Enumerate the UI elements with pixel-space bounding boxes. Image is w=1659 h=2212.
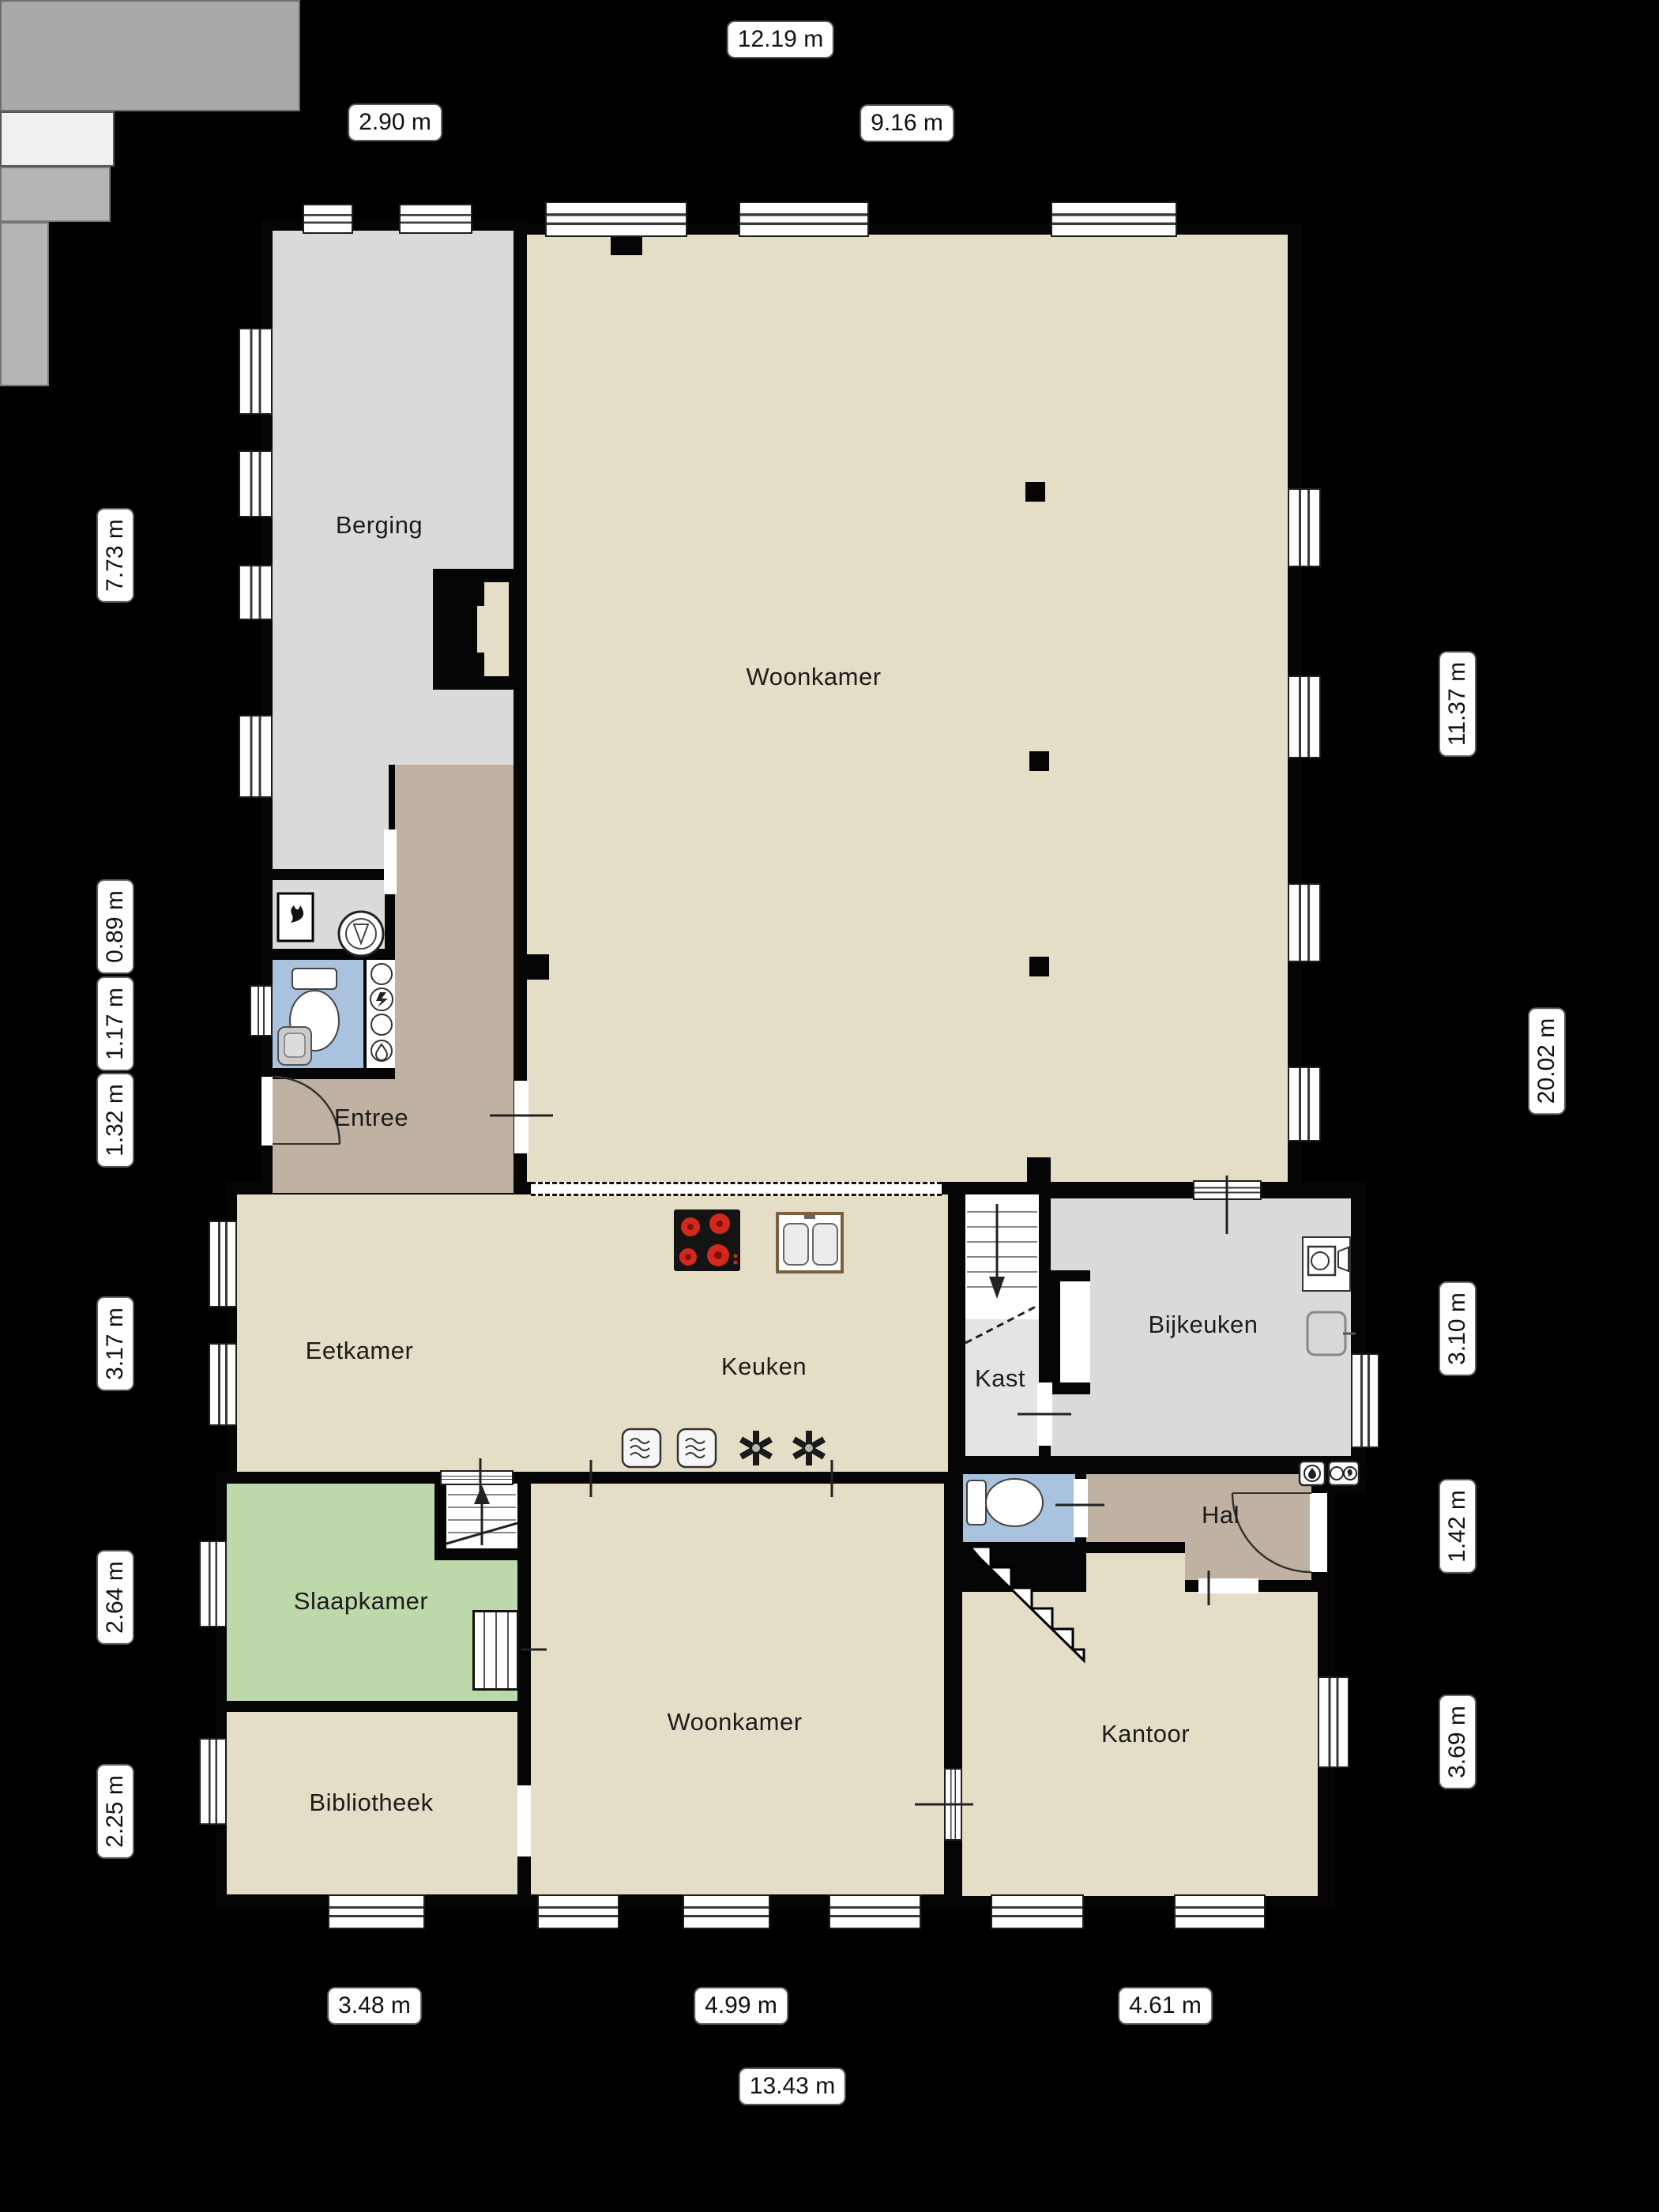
water-meter-icon bbox=[1300, 1461, 1325, 1485]
oven-icon bbox=[623, 1429, 660, 1467]
boiler-icon bbox=[278, 893, 313, 941]
room-label-eetkamer: Eetkamer bbox=[306, 1337, 414, 1365]
room-label-kast: Kast bbox=[975, 1364, 1025, 1393]
toilet-icon bbox=[967, 1479, 1043, 1526]
room-label-woonkamer-beneden: Woonkamer bbox=[667, 1708, 802, 1736]
dimension-bottom-2: 4.61 m bbox=[1119, 1988, 1211, 2023]
burner-star-icon bbox=[741, 1431, 771, 1465]
washing-machine-icon bbox=[339, 912, 383, 956]
room-label-slaapkamer: Slaapkamer bbox=[294, 1587, 428, 1616]
stairs-up-icon bbox=[446, 1485, 517, 1545]
double-sink-icon bbox=[777, 1213, 842, 1272]
dimension-left-2: 1.17 m bbox=[98, 978, 133, 1070]
room-label-keuken: Keuken bbox=[721, 1352, 807, 1381]
water-meter-icon bbox=[371, 1040, 392, 1061]
room-label-woonkamer-boven: Woonkamer bbox=[746, 663, 881, 691]
dimension-left-1: 0.89 m bbox=[98, 881, 133, 972]
dimension-left-4: 3.17 m bbox=[98, 1298, 133, 1390]
dimension-bottom-1: 4.99 m bbox=[695, 1988, 787, 2023]
room-label-hal: Hal bbox=[1202, 1501, 1240, 1529]
door-arc-icon bbox=[1232, 1493, 1311, 1572]
diagonal-chimney-hatch bbox=[970, 1547, 1084, 1661]
gas-meter-icon bbox=[1329, 1461, 1359, 1485]
wardrobe-icon bbox=[484, 1612, 508, 1688]
room-label-berging: Berging bbox=[336, 511, 423, 540]
oven-icon bbox=[678, 1429, 716, 1467]
fixtures-overlay bbox=[0, 0, 1659, 2212]
door-arc-icon bbox=[273, 1077, 340, 1144]
room-label-kantoor: Kantoor bbox=[1101, 1720, 1190, 1748]
dimension-bottom-3: 13.43 m bbox=[740, 2069, 845, 2104]
cooktop-icon bbox=[674, 1209, 740, 1271]
dimension-top-0: 12.19 m bbox=[728, 22, 833, 57]
dimension-left-6: 2.25 m bbox=[98, 1766, 133, 1857]
sink-icon bbox=[1307, 1312, 1356, 1355]
room-label-bijkeuken: Bijkeuken bbox=[1149, 1311, 1258, 1339]
dimension-right-0: 11.37 m bbox=[1440, 653, 1475, 755]
dimension-top-2: 9.16 m bbox=[861, 106, 953, 141]
dimension-left-5: 2.64 m bbox=[98, 1552, 133, 1643]
washbasin-icon bbox=[278, 1027, 311, 1065]
dimension-bottom-0: 3.48 m bbox=[329, 1988, 420, 2023]
door-tick-marks bbox=[480, 1115, 1227, 1804]
burner-star-icon bbox=[794, 1431, 824, 1465]
dimension-left-0: 7.73 m bbox=[98, 510, 133, 601]
dimension-top-1: 2.90 m bbox=[349, 105, 441, 140]
room-label-bibliotheek: Bibliotheek bbox=[309, 1789, 433, 1817]
dimension-right-4: 3.69 m bbox=[1440, 1696, 1475, 1788]
washing-machine-icon bbox=[1308, 1247, 1349, 1275]
floor-plan: BergingWoonkamerEntreeEetkamerKeukenKast… bbox=[0, 0, 1659, 2212]
dimension-right-3: 1.42 m bbox=[1440, 1480, 1475, 1572]
dimension-right-2: 3.10 m bbox=[1440, 1283, 1475, 1375]
room-label-entree: Entree bbox=[334, 1104, 408, 1132]
electric-meter-icon bbox=[371, 964, 393, 1035]
dimension-left-3: 1.32 m bbox=[98, 1074, 133, 1166]
stairs-down-icon bbox=[965, 1204, 1039, 1343]
dimension-right-1: 20.02 m bbox=[1529, 1009, 1564, 1113]
